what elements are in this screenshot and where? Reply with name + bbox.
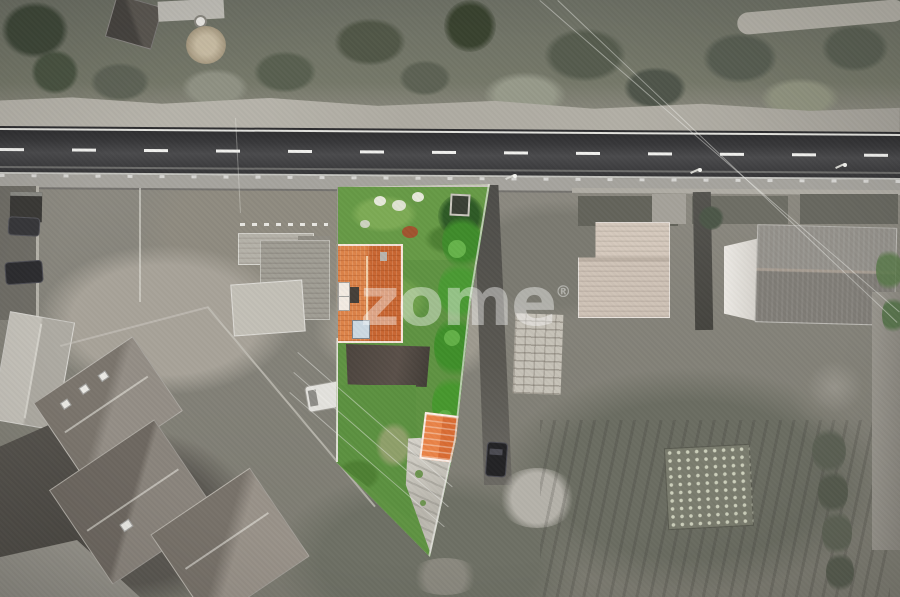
roof-skylight: [119, 519, 133, 533]
flowering-shrub: [412, 192, 424, 202]
roof-ridge: [86, 468, 178, 531]
watermark-text: zome: [360, 263, 555, 342]
hedge-row: [818, 470, 848, 514]
street-light: [505, 174, 519, 180]
fence-line: [139, 188, 141, 302]
neighbor-house-left-terrace: [230, 280, 305, 337]
pergola-structure: [449, 193, 470, 216]
parked-car-dark: [4, 260, 44, 286]
roof-skylight: [98, 370, 110, 382]
roof-skylight: [338, 282, 350, 297]
street-light-head: [843, 163, 847, 167]
hedge-row: [812, 428, 846, 474]
chimney: [350, 287, 359, 303]
conifer-cluster: [444, 0, 496, 52]
aerial-photo-scene: zome®: [0, 0, 900, 597]
footpath-bottom: [410, 558, 480, 595]
hedge-row: [822, 510, 852, 556]
zome-watermark: zome®: [360, 254, 580, 334]
roof-skylight: [79, 384, 91, 396]
flowering-shrub: [392, 200, 406, 211]
dry-tree: [186, 26, 226, 64]
alley-tree: [698, 206, 724, 230]
bare-tree: [788, 344, 882, 430]
property-patio: [346, 344, 430, 387]
main-road: [0, 126, 900, 194]
street-light: [835, 163, 849, 169]
street-light-head: [698, 168, 702, 172]
roof-skylight: [338, 296, 350, 311]
green-bush-right-edge: [882, 296, 900, 334]
green-bush-right-edge: [876, 248, 900, 292]
vegetable-garden-patch: [664, 444, 754, 530]
fence-posts: [240, 223, 328, 226]
car-windshield: [489, 449, 502, 456]
car-on-lane: [485, 441, 508, 477]
concrete-pad: [158, 0, 225, 22]
roof-skylight: [60, 398, 72, 410]
front-yard: [800, 194, 898, 224]
parked-car-dark: [8, 216, 41, 237]
flowering-shrub: [374, 196, 386, 206]
driveway-weeds: [415, 470, 423, 478]
flowering-shrub: [360, 220, 370, 228]
driveway-entrance: [652, 194, 686, 224]
street-light-head: [513, 174, 517, 178]
roof-ridge: [185, 513, 268, 570]
red-shrub: [402, 226, 418, 238]
hedge-row: [826, 552, 854, 592]
registered-trademark-symbol: ®: [555, 282, 571, 301]
roof-ridge: [64, 376, 147, 433]
street-light: [690, 168, 704, 174]
